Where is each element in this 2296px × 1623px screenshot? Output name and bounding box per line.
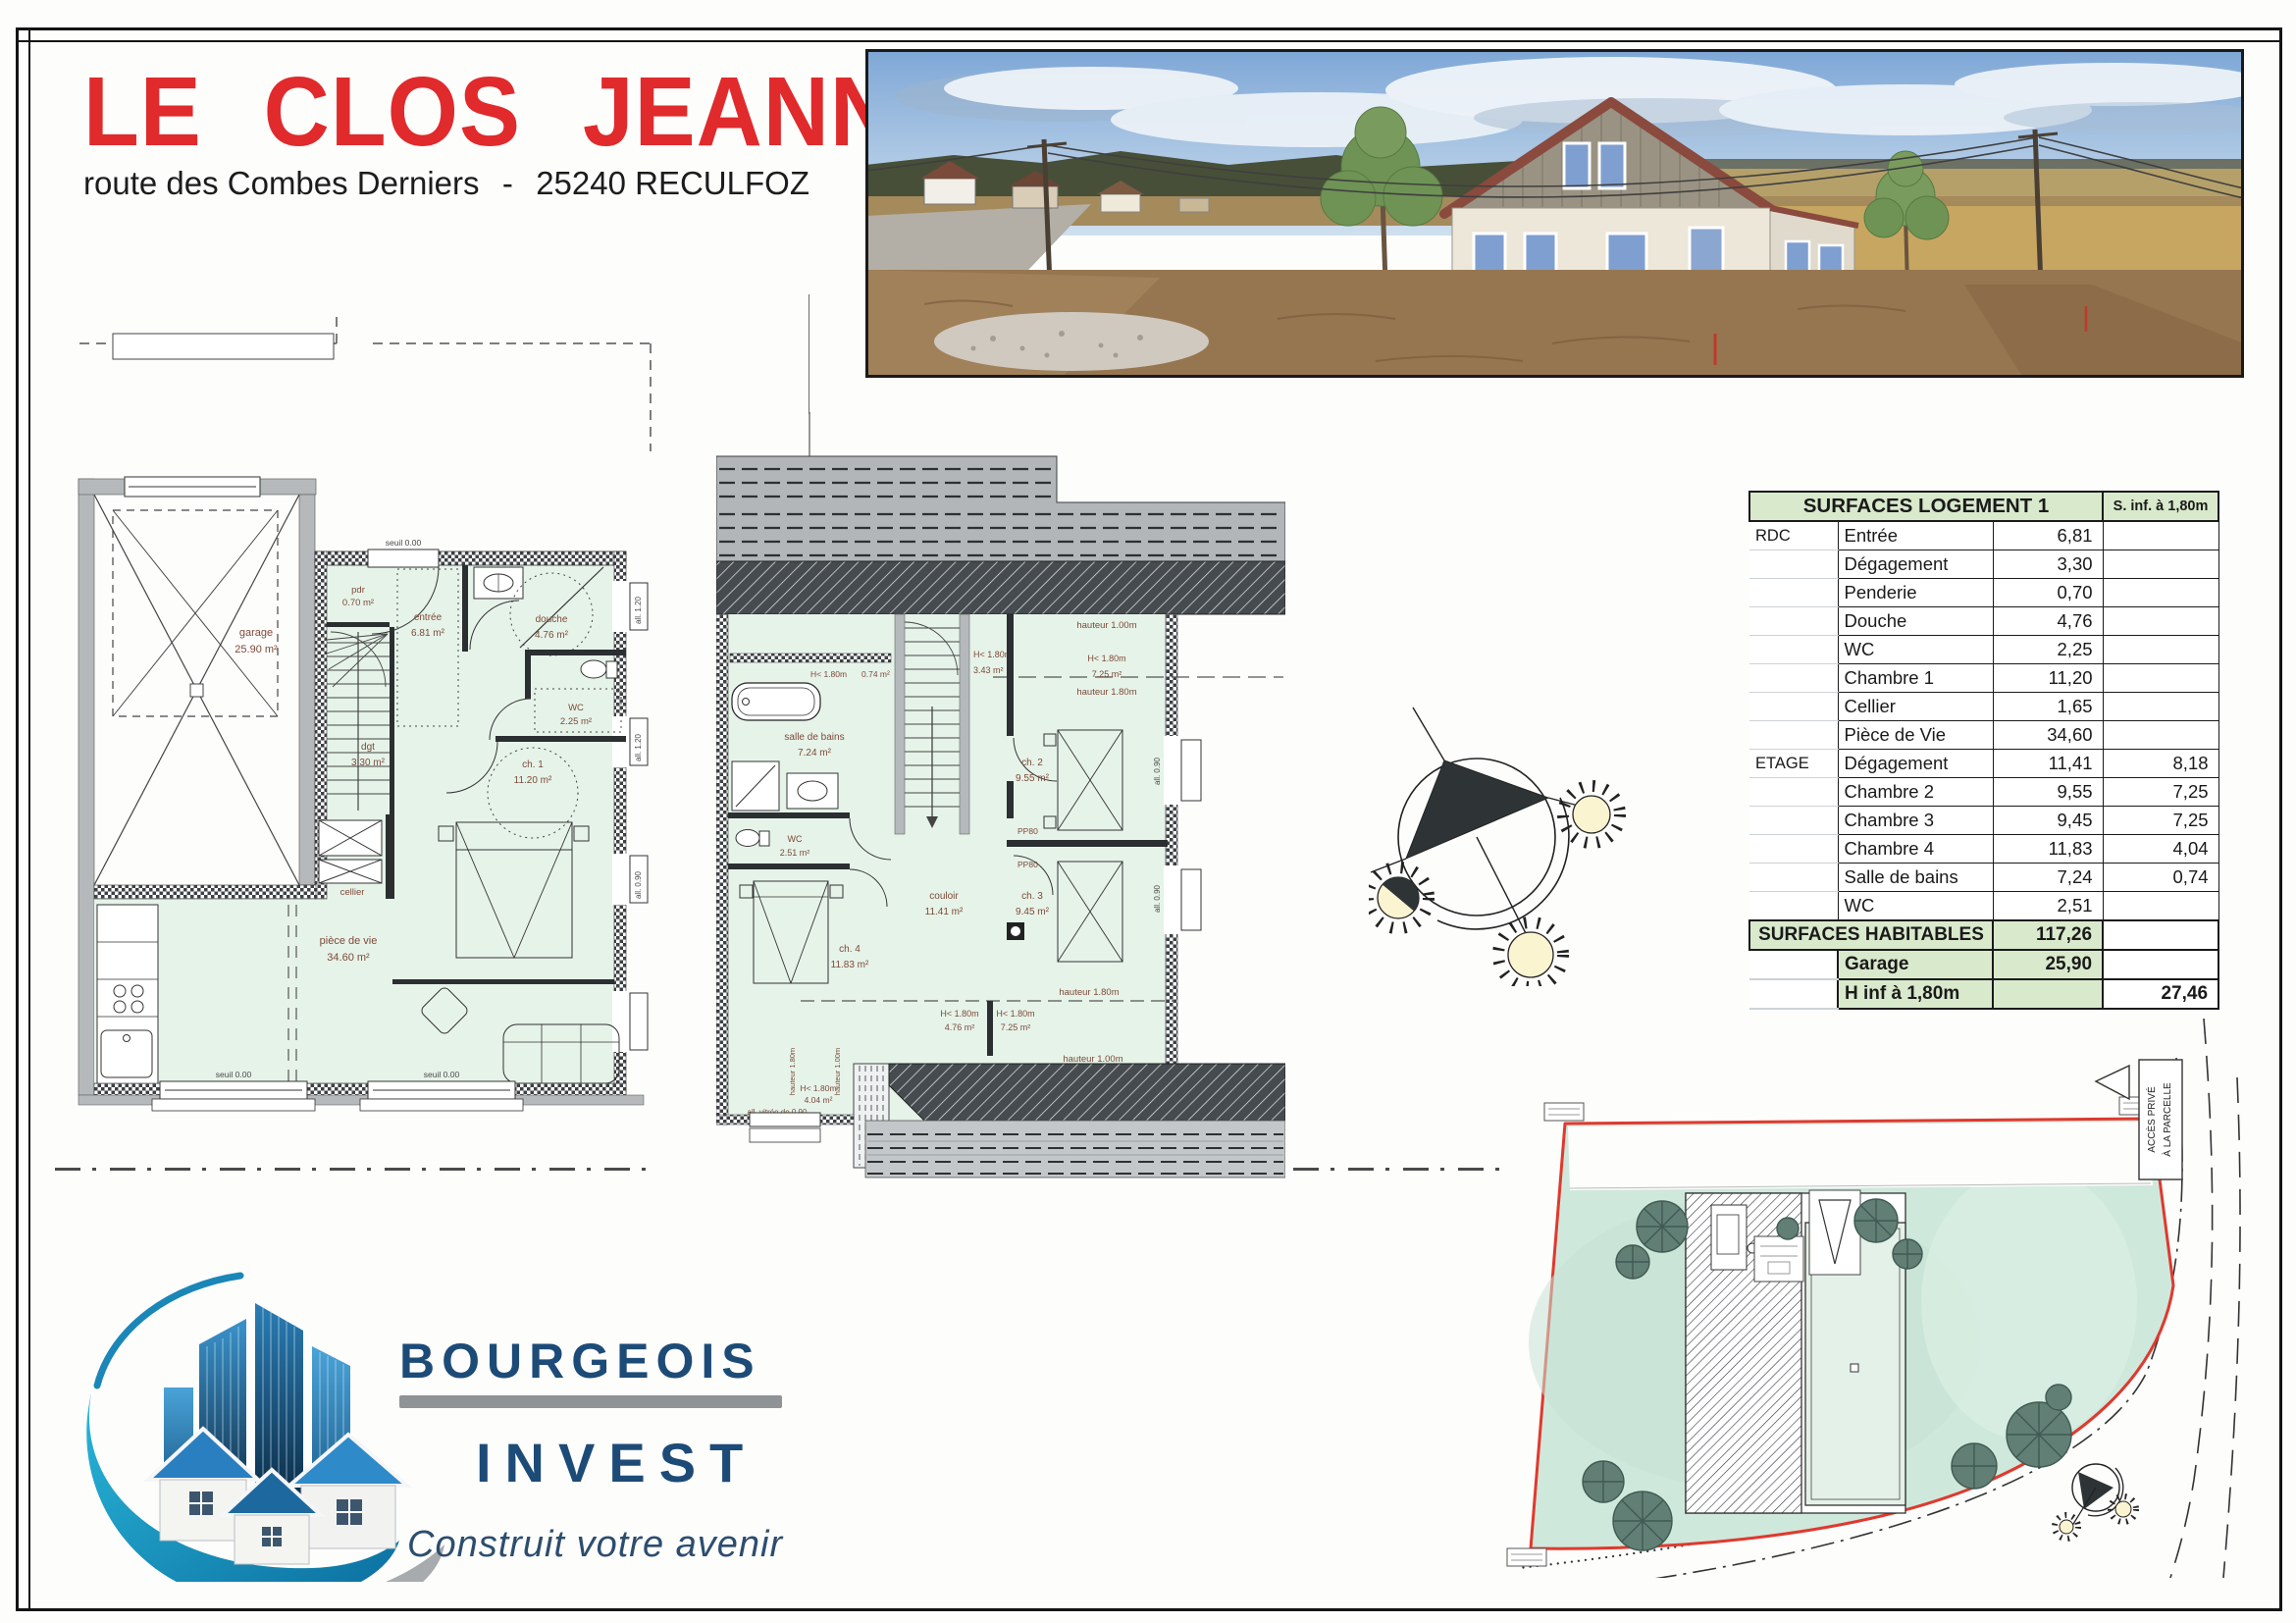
seuil-label: seuil 0.00 (386, 538, 422, 548)
allege-label: all. 1.20 (634, 733, 643, 761)
height-label: H< 1.80m (810, 669, 847, 679)
table-row: Chambre 39,457,25 (1749, 807, 2218, 835)
cell-room: Chambre 2 (1838, 778, 1993, 807)
cell-floor (1749, 979, 1838, 1009)
logo-tagline: Construit votre avenir (407, 1524, 783, 1565)
cell-floor (1749, 807, 1838, 835)
room-label: couloir (929, 891, 959, 902)
cell-value: 9,45 (1993, 807, 2103, 835)
height-label: H< 1.80m (940, 1009, 978, 1019)
cell-room: WC (1838, 892, 1993, 921)
wall (1007, 840, 1168, 847)
cell-floor (1749, 835, 1838, 864)
seuil-label: seuil 0.00 (424, 1070, 460, 1079)
property-dashed-line (79, 312, 651, 451)
cell-sinf: 7,25 (2103, 778, 2218, 807)
access-text-2: À LA PARCELLE (2161, 1082, 2173, 1157)
cell-sinf (2103, 579, 2218, 607)
room-area: 9.45 m² (1016, 907, 1050, 917)
habitables-value: 117,26 (1993, 920, 2103, 950)
area-label: 4.76 m² (945, 1022, 975, 1032)
height-label: hauteur 1.80m (788, 1048, 797, 1095)
room-area: 2.51 m² (780, 848, 810, 858)
room-label: dgt (361, 742, 375, 753)
area-label: 0.74 m² (861, 669, 890, 679)
cell-value: 0,70 (1993, 579, 2103, 607)
cell-sinf (2103, 920, 2218, 950)
rdc-floor-plan: garage 25.90 m² seuil 0.00 all. 1.20 all… (74, 304, 652, 1148)
table-row: Chambre 111,20 (1749, 664, 2218, 693)
logo-mark (86, 1276, 444, 1582)
table-row: RDCEntrée6,81 (1749, 521, 2218, 550)
room-label: ch. 4 (839, 944, 861, 955)
driveway (1568, 1122, 2153, 1190)
room-area: 6.81 m² (411, 628, 445, 639)
washbasin (787, 773, 838, 809)
room-label: salle de bains (784, 732, 844, 743)
roof-slope-band (889, 1064, 1285, 1121)
garage-label: Garage (1838, 950, 1993, 979)
height-label: hauteur 1.00m (1063, 1054, 1122, 1065)
table-row: Penderie0,70 (1749, 579, 2218, 607)
cell-sinf (2103, 721, 2218, 750)
sun-south (1498, 922, 1563, 986)
cell-room: Dégagement (1838, 750, 1993, 778)
hinf-value: 27,46 (2103, 979, 2218, 1009)
room-label: pdr (351, 585, 365, 596)
address-city: 25240 RECULFOZ (536, 165, 809, 202)
table-title: SURFACES LOGEMENT 1 (1749, 492, 2103, 521)
table-row: Douche4,76 (1749, 607, 2218, 636)
logo-name-bottom: INVEST (476, 1432, 757, 1493)
cell-floor (1749, 864, 1838, 892)
cell-value (1993, 979, 2103, 1009)
cell-room: Chambre 3 (1838, 807, 1993, 835)
cell-value: 2,51 (1993, 892, 2103, 921)
scanned-sheet: LE CLOS JEANNE route des Combes Derniers… (0, 0, 2296, 1623)
room-label: pièce de vie (320, 935, 378, 947)
cell-floor: ETAGE (1749, 750, 1838, 778)
cell-room: Chambre 1 (1838, 664, 1993, 693)
toilet (736, 830, 759, 847)
roof-overhang (716, 456, 1285, 561)
cell-value: 4,76 (1993, 607, 2103, 636)
cell-sinf: 8,18 (2103, 750, 2218, 778)
height-label: hauteur 1.80m (1059, 987, 1119, 998)
cell-sinf (2103, 636, 2218, 664)
room-label: cellier (340, 887, 365, 898)
room-area: 34.60 m² (327, 952, 370, 964)
cell-room: WC (1838, 636, 1993, 664)
allege-label: all. 1.20 (634, 596, 643, 624)
room-area: 4.76 m² (535, 630, 569, 641)
cell-room: Chambre 4 (1838, 835, 1993, 864)
cell-room: Douche (1838, 607, 1993, 636)
page-title: LE CLOS JEANNE (83, 55, 829, 169)
height-label: hauteur 1.00m (1076, 620, 1136, 631)
table-row: Chambre 29,557,25 (1749, 778, 2218, 807)
cell-floor (1749, 664, 1838, 693)
room-area: 3.30 m² (351, 758, 386, 768)
totals-row: H inf à 1,80m 27,46 (1749, 979, 2218, 1009)
height-label: hauteur 1.80m (1076, 687, 1136, 698)
hinf-label: H inf à 1,80m (1838, 979, 1993, 1009)
cell-value: 6,81 (1993, 521, 2103, 550)
cell-room: Dégagement (1838, 550, 1993, 579)
cell-sinf (2103, 693, 2218, 721)
ground-dash-line (55, 1168, 657, 1171)
kitchen-counter (97, 905, 158, 1087)
plan-note-box (1754, 1236, 1803, 1282)
room-label: ch. 3 (1021, 891, 1043, 902)
sheet-border-inner-top (16, 40, 2282, 42)
neighbor-wall (113, 334, 334, 359)
room-area: 25.90 m² (235, 644, 278, 655)
area-label: 7.25 m² (1001, 1022, 1031, 1032)
gable-window (1564, 143, 1590, 188)
room-area: 11.83 m² (831, 960, 869, 970)
sun-west (1369, 867, 1429, 928)
cell-floor (1749, 950, 1838, 979)
room-label: garage (239, 627, 273, 639)
room-area: 2.25 m² (560, 716, 592, 727)
cell-floor (1749, 607, 1838, 636)
sinf-header: S. inf. à 1,80m (2103, 492, 2218, 521)
cell-sinf (2103, 550, 2218, 579)
height-label: H< 1.80m (1087, 654, 1125, 663)
cell-value: 7,24 (1993, 864, 2103, 892)
room-label: WC (788, 834, 803, 844)
cell-sinf (2103, 664, 2218, 693)
cell-sinf (2103, 892, 2218, 921)
table-row: Dégagement3,30 (1749, 550, 2218, 579)
area-label: 3.43 m² (973, 665, 1004, 675)
living-interior (94, 899, 614, 1095)
seuil-label: seuil 0.00 (216, 1070, 252, 1079)
etage-floor-plan: all. 0.90 all. 0.90 H< 1.80m 0.74 m² sal… (716, 412, 1285, 1276)
terrain-shade (1921, 1166, 2137, 1440)
access-text-1: ACCÈS PRIVÉ (2145, 1086, 2158, 1153)
room-label: WC (568, 703, 584, 713)
room-label: douche (536, 614, 568, 625)
table-row: Chambre 411,834,04 (1749, 835, 2218, 864)
cell-value: 34,60 (1993, 721, 2103, 750)
surfaces-table: SURFACES LOGEMENT 1 S. inf. à 1,80m RDCE… (1748, 491, 2218, 1010)
cell-sinf (2103, 950, 2218, 979)
sun-east (1563, 786, 1620, 843)
cell-floor (1749, 636, 1838, 664)
totals-row: SURFACES HABITABLES 117,26 (1749, 920, 2218, 950)
allege-label: all. 0.90 (1153, 884, 1162, 913)
site-plan: ACCÈS PRIVÉ À LA PARCELLE (1460, 1019, 2245, 1578)
wall (716, 614, 728, 1125)
cell-sinf: 0,74 (2103, 864, 2218, 892)
totals-row: Garage 25,90 (1749, 950, 2218, 979)
height-label: H< 1.80m (800, 1083, 836, 1093)
cell-room: Penderie (1838, 579, 1993, 607)
table-row: Pièce de Vie34,60 (1749, 721, 2218, 750)
entry-door-opening (368, 550, 439, 567)
room-label: ch. 1 (522, 759, 544, 770)
cell-floor (1749, 892, 1838, 921)
cell-value: 9,55 (1993, 778, 2103, 807)
house-photo (865, 49, 2244, 378)
room-label: entrée (414, 612, 443, 623)
door-label: PP80 (1018, 860, 1038, 869)
table-row: ETAGEDégagement11,418,18 (1749, 750, 2218, 778)
room-area: 11.41 m² (925, 907, 964, 917)
access-arrow (2096, 1066, 2129, 1099)
company-logo: BOURGEOIS INVEST Construit votre avenir (54, 1248, 800, 1582)
table-row: Cellier1,65 (1749, 693, 2218, 721)
toilet (581, 660, 606, 678)
room-area: 7.24 m² (798, 748, 832, 759)
cell-room: Salle de bains (1838, 864, 1993, 892)
table-header-row: SURFACES LOGEMENT 1 S. inf. à 1,80m (1749, 492, 2218, 521)
habitables-label: SURFACES HABITABLES (1749, 920, 1993, 950)
roof-slope-band (716, 561, 1285, 614)
compass-rose (1369, 692, 1663, 986)
area-label: 7.25 m² (1092, 669, 1122, 679)
height-label: H< 1.80m (973, 650, 1012, 659)
wall (94, 885, 316, 899)
cell-value: 2,25 (1993, 636, 2103, 664)
room-area: 0.70 m² (342, 598, 374, 608)
logo-name-top: BOURGEOIS (399, 1334, 761, 1388)
table-row: WC2,51 (1749, 892, 2218, 921)
mini-compass (2055, 1464, 2136, 1539)
cell-value: 1,65 (1993, 693, 2103, 721)
wall (1166, 614, 1177, 1064)
room-label: ch. 2 (1021, 758, 1043, 768)
cell-floor (1749, 550, 1838, 579)
cell-floor (1749, 579, 1838, 607)
cell-room: Pièce de Vie (1838, 721, 1993, 750)
sheet-border-inner-left (28, 27, 30, 1611)
road-edge-line (2223, 1077, 2240, 1578)
wall (315, 551, 626, 565)
window-outer (750, 1128, 820, 1142)
cell-room: Cellier (1838, 693, 1993, 721)
cell-value: 11,83 (1993, 835, 2103, 864)
roof-overhang-bottom (865, 1121, 1285, 1178)
address-separator: - (502, 165, 513, 202)
cell-floor (1749, 778, 1838, 807)
window (750, 1113, 820, 1126)
cell-value: 11,41 (1993, 750, 2103, 778)
cell-value: 3,30 (1993, 550, 2103, 579)
area-label: 4.04 m² (805, 1095, 833, 1105)
table-row: Salle de bains7,240,74 (1749, 864, 2218, 892)
allege-label: all. 0.90 (634, 870, 643, 899)
logo-wordmark: BOURGEOIS INVEST Construit votre avenir (399, 1334, 783, 1565)
cell-sinf (2103, 521, 2218, 550)
gable-window (1599, 143, 1625, 188)
height-label: H< 1.80m (996, 1009, 1034, 1019)
cell-sinf (2103, 607, 2218, 636)
cell-sinf: 7,25 (2103, 807, 2218, 835)
cell-floor (1749, 721, 1838, 750)
cell-floor (1749, 693, 1838, 721)
address-street: route des Combes Derniers (83, 165, 480, 202)
gravel (934, 312, 1209, 371)
room-area: 9.55 m² (1016, 773, 1050, 784)
knee-wall (730, 654, 891, 662)
cell-value: 11,20 (1993, 664, 2103, 693)
allege-label: all. 0.90 (1153, 757, 1162, 785)
wall (987, 1001, 993, 1056)
room-area: 11.20 m² (514, 775, 552, 786)
cell-room: Entrée (1838, 521, 1993, 550)
table-row: WC2,25 (1749, 636, 2218, 664)
reference-line (809, 294, 809, 414)
address-line: route des Combes Derniers - 25240 RECULF… (83, 165, 809, 202)
garage-value: 25,90 (1993, 950, 2103, 979)
cell-floor: RDC (1749, 521, 1838, 550)
door-label: PP80 (1018, 826, 1038, 836)
cell-sinf: 4,04 (2103, 835, 2218, 864)
logo-divider (399, 1395, 782, 1408)
